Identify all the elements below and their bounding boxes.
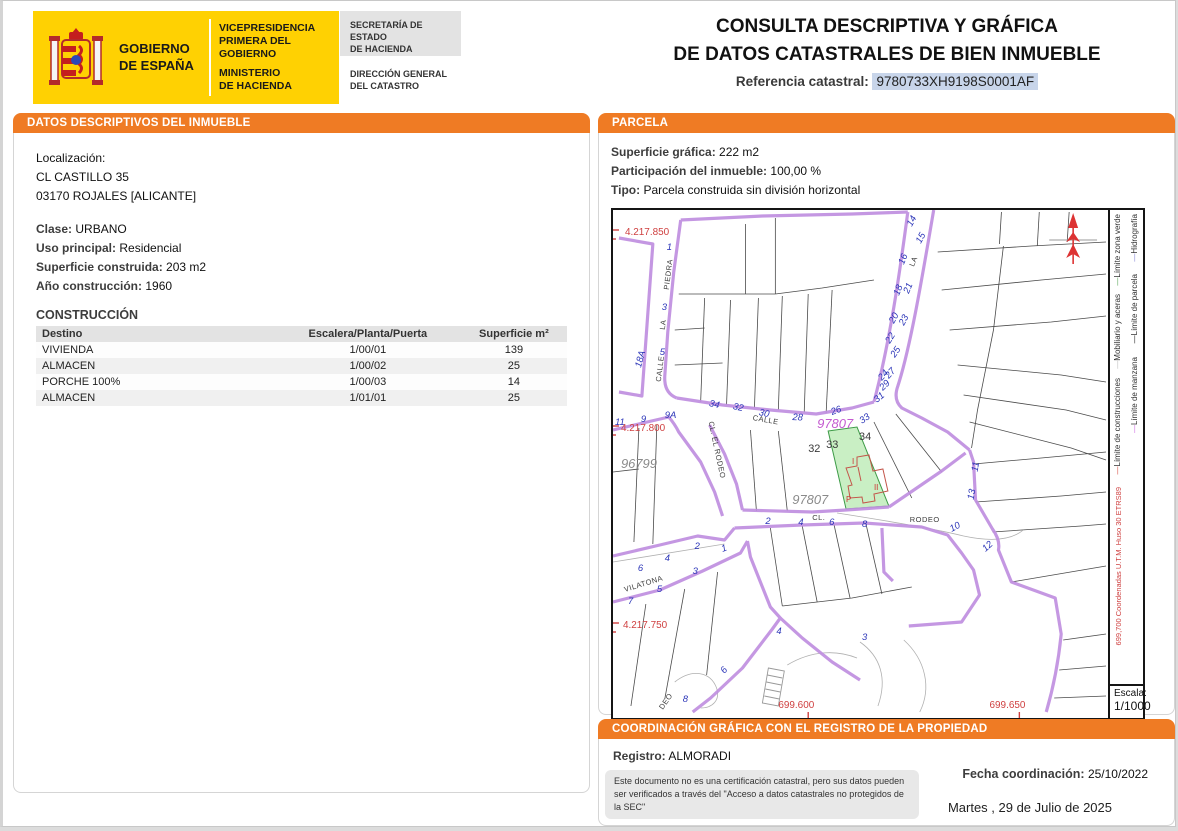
localizacion-label: Localización: xyxy=(36,149,567,168)
field-ano-construccion: Año construcción: 1960 xyxy=(36,277,567,296)
field-registro: Registro: ALMORADI xyxy=(613,747,1160,766)
government-logo-box: GOBIERNO DE ESPAÑA VICEPRESIDENCIA PRIME… xyxy=(33,11,339,104)
cadastral-map-frame: 4.217.8504.217.8004.217.750699.600699.65… xyxy=(611,208,1145,720)
svg-text:6: 6 xyxy=(638,563,644,574)
table-row: ALMACEN 1/00/02 25 xyxy=(36,358,567,374)
svg-text:10: 10 xyxy=(948,520,963,535)
legend-hidrografia: —Hidrografía xyxy=(1131,214,1139,262)
svg-text:11: 11 xyxy=(615,417,625,428)
coordinacion-panel: COORDINACIÓN GRÁFICA CON EL REGISTRO DE … xyxy=(598,719,1175,826)
svg-text:18A: 18A xyxy=(633,350,648,369)
svg-text:1: 1 xyxy=(667,242,672,253)
coordinate-ticks xyxy=(613,230,1019,718)
svg-text:4.217.750: 4.217.750 xyxy=(623,620,668,631)
document-date: Martes , 29 de Julio de 2025 xyxy=(948,800,1112,815)
coordinacion-header: COORDINACIÓN GRÁFICA CON EL REGISTRO DE … xyxy=(598,719,1175,739)
svg-text:699.650: 699.650 xyxy=(989,700,1025,711)
vicepresidencia-label: VICEPRESIDENCIA PRIMERA DEL GOBIERNO xyxy=(219,22,339,61)
referencia-label: Referencia catastral: xyxy=(736,74,869,89)
svg-text:25: 25 xyxy=(888,344,904,360)
svg-text:33: 33 xyxy=(857,411,873,427)
svg-text:P: P xyxy=(846,495,851,504)
svg-text:3: 3 xyxy=(662,302,668,313)
scale-box: Escala: 1/1000 xyxy=(1110,684,1143,718)
col-destino: Destino xyxy=(36,326,275,342)
spain-coat-of-arms-icon xyxy=(33,22,119,94)
field-participacion: Participación del inmueble: 100,00 % xyxy=(611,162,1166,181)
svg-text:28: 28 xyxy=(791,412,804,424)
field-uso-principal: Uso principal: Residencial xyxy=(36,239,567,258)
direccion-general-catastro-label: DIRECCIÓN GENERAL DEL CATASTRO xyxy=(340,58,461,104)
svg-text:4: 4 xyxy=(798,517,803,528)
svg-text:22: 22 xyxy=(883,330,899,346)
parcela-header: PARCELA xyxy=(598,113,1175,133)
gobierno-de-espana-label: GOBIERNO DE ESPAÑA xyxy=(119,41,207,74)
svg-text:2: 2 xyxy=(764,516,771,527)
svg-text:33: 33 xyxy=(826,439,838,451)
svg-text:9: 9 xyxy=(641,414,647,425)
svg-text:5: 5 xyxy=(657,584,663,595)
svg-text:32: 32 xyxy=(808,443,820,455)
svg-text:699.600: 699.600 xyxy=(778,700,814,711)
svg-text:12: 12 xyxy=(980,538,996,554)
field-clase: Clase: URBANO xyxy=(36,220,567,239)
datos-descriptivos-header: DATOS DESCRIPTIVOS DEL INMUEBLE xyxy=(13,113,590,133)
svg-text:34: 34 xyxy=(859,431,871,443)
map-legend: —Límite zona verde —Mobiliario y aceras … xyxy=(1108,210,1143,718)
legend-limite-zona-verde: —Límite zona verde xyxy=(1114,214,1122,286)
secretaria-estado-label: SECRETARÍA DE ESTADO DE HACIENDA xyxy=(340,11,461,56)
svg-text:97807: 97807 xyxy=(792,492,829,507)
svg-text:97807: 97807 xyxy=(817,416,854,431)
field-superficie-construida: Superficie construida: 203 m2 xyxy=(36,258,567,277)
document-title-line1: CONSULTA DESCRIPTIVA Y GRÁFICA xyxy=(601,13,1173,41)
disclaimer-note: Este documento no es una certificación c… xyxy=(605,770,919,819)
col-escalera: Escalera/Planta/Puerta xyxy=(275,326,461,342)
address-line2: 03170 ROJALES [ALICANTE] xyxy=(36,187,567,206)
document-title-line2: DE DATOS CATASTRALES DE BIEN INMUEBLE xyxy=(601,41,1173,69)
svg-text:5: 5 xyxy=(660,347,666,358)
svg-text:LA: LA xyxy=(658,319,668,330)
svg-text:6: 6 xyxy=(829,517,835,528)
document-page: GOBIERNO DE ESPAÑA VICEPRESIDENCIA PRIME… xyxy=(0,0,1176,827)
field-fecha-coordinacion: Fecha coordinación: 25/10/2022 xyxy=(962,767,1148,781)
address-line1: CL CASTILLO 35 xyxy=(36,168,567,187)
svg-text:3: 3 xyxy=(693,566,699,577)
svg-text:96799: 96799 xyxy=(621,456,657,471)
legend-coordinates-note: 699,700 Coordenadas U.T.M. Huso 30 ETRS8… xyxy=(1115,487,1123,645)
svg-text:9A: 9A xyxy=(665,410,677,421)
svg-text:1: 1 xyxy=(720,543,729,555)
table-row: VIVIENDA 1/00/01 139 xyxy=(36,342,567,358)
svg-text:4: 4 xyxy=(665,553,670,564)
table-row: PORCHE 100% 1/00/03 14 xyxy=(36,374,567,390)
svg-text:21: 21 xyxy=(901,281,915,296)
escala-label: Escala: xyxy=(1114,688,1139,699)
svg-text:8: 8 xyxy=(683,694,689,705)
table-row: ALMACEN 1/01/01 25 xyxy=(36,390,567,406)
legend-limite-manzana: —Límite de manzana xyxy=(1131,357,1139,433)
svg-text:4: 4 xyxy=(776,626,781,637)
field-tipo: Tipo: Parcela construida sin división ho… xyxy=(611,181,1166,200)
legend-limite-parcela: —Límite de parcela xyxy=(1131,274,1139,343)
referencia-catastral: Referencia catastral: 9780733XH9198S0001… xyxy=(601,74,1173,89)
svg-text:DEO: DEO xyxy=(657,691,674,711)
svg-text:CL. EL RODEO: CL. EL RODEO xyxy=(707,421,728,480)
escala-value: 1/1000 xyxy=(1114,699,1139,713)
col-superficie: Superficie m² xyxy=(461,326,567,342)
svg-text:8: 8 xyxy=(862,519,868,530)
logo-divider xyxy=(209,19,211,96)
svg-text:RODEO: RODEO xyxy=(910,515,940,524)
parcela-panel: PARCELA Superficie gráfica: 222 m2 Parti… xyxy=(598,113,1175,715)
svg-text:32: 32 xyxy=(732,401,745,414)
ministerio-label: MINISTERIO DE HACIENDA xyxy=(219,67,339,93)
svg-text:11: 11 xyxy=(970,461,983,473)
legend-mobiliario-aceras: —Mobiliario y aceras xyxy=(1114,294,1122,369)
construccion-table: Destino Escalera/Planta/Puerta Superfici… xyxy=(36,326,567,406)
svg-text:34: 34 xyxy=(708,398,721,411)
table-header-row: Destino Escalera/Planta/Puerta Superfici… xyxy=(36,326,567,342)
svg-text:I: I xyxy=(852,457,854,466)
svg-text:4.217.850: 4.217.850 xyxy=(625,227,670,238)
datos-descriptivos-panel: DATOS DESCRIPTIVOS DEL INMUEBLE Localiza… xyxy=(13,113,590,793)
svg-text:CL.: CL. xyxy=(812,513,825,522)
north-arrow-icon xyxy=(1049,213,1097,264)
svg-text:7: 7 xyxy=(628,596,634,607)
svg-text:2: 2 xyxy=(694,541,701,552)
construccion-title: CONSTRUCCIÓN xyxy=(36,308,567,322)
svg-text:6: 6 xyxy=(718,664,730,676)
svg-text:II: II xyxy=(874,483,878,492)
cadastral-map[interactable]: 4.217.8504.217.8004.217.750699.600699.65… xyxy=(613,210,1108,718)
referencia-value[interactable]: 9780733XH9198S0001AF xyxy=(872,73,1038,90)
field-superficie-grafica: Superficie gráfica: 222 m2 xyxy=(611,143,1166,162)
svg-text:3: 3 xyxy=(862,632,868,643)
legend-limite-construcciones: —Límite de construcciones xyxy=(1114,378,1122,475)
